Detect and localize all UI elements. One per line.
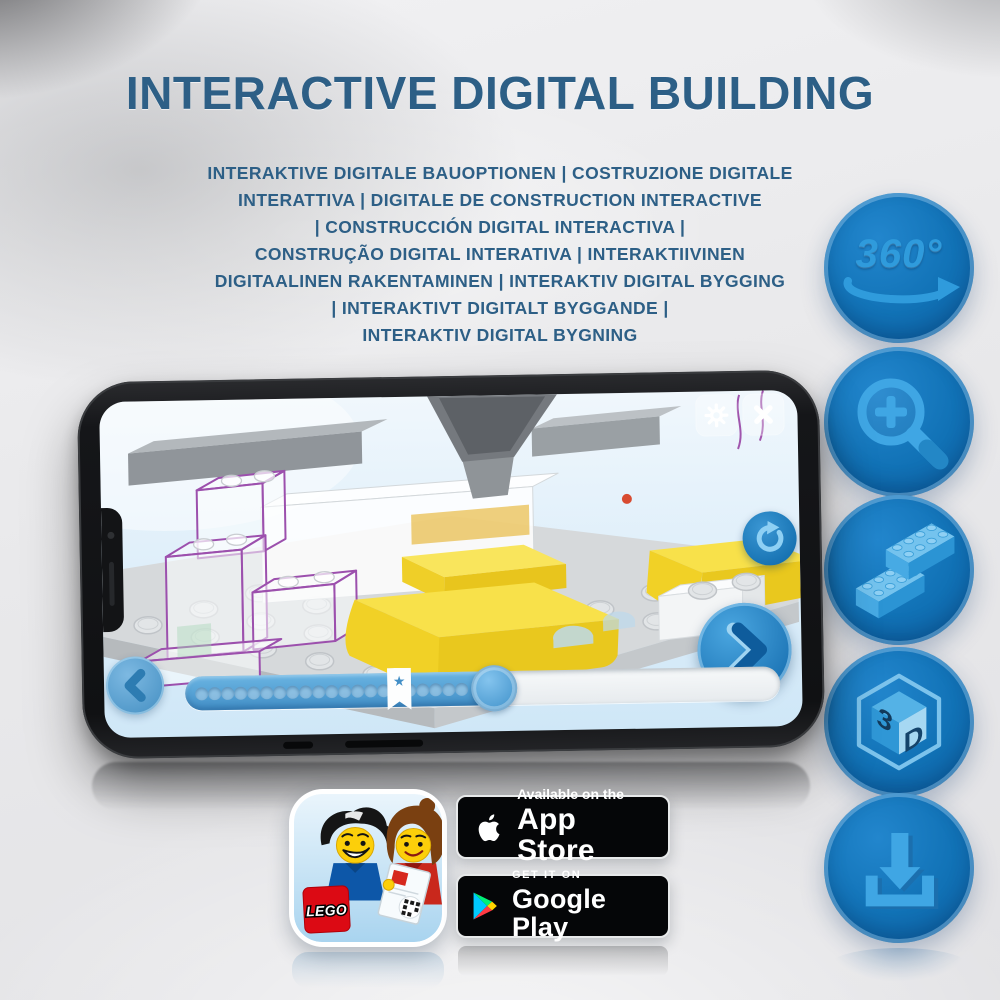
multilingual-subtitle: INTERAKTIVE DIGITALE BAUOPTIONEN | COSTR… bbox=[120, 160, 880, 349]
phone-volume-button bbox=[345, 740, 423, 748]
progress-dot bbox=[416, 683, 429, 696]
settings-button[interactable] bbox=[695, 394, 738, 437]
progress-dot bbox=[208, 687, 221, 700]
feature-3d-view-icon: 3 D bbox=[824, 647, 974, 797]
progress-dot bbox=[455, 682, 468, 695]
speaker-icon bbox=[109, 562, 115, 606]
smartphone: ★ bbox=[77, 370, 825, 760]
phone-reflection bbox=[92, 762, 810, 810]
app-store-tagline: Available on the bbox=[517, 787, 654, 802]
rotate-icon bbox=[749, 518, 790, 559]
progress-dot bbox=[299, 685, 312, 698]
progress-dot bbox=[338, 684, 351, 697]
camera-icon bbox=[107, 532, 114, 539]
phone-notch bbox=[101, 508, 124, 632]
feature-zoom-in-icon bbox=[824, 347, 974, 497]
gear-icon bbox=[701, 400, 732, 431]
download-icon-reflection bbox=[830, 948, 968, 982]
close-button[interactable] bbox=[742, 393, 785, 436]
google-play-name: Google Play bbox=[512, 885, 654, 942]
progress-dot bbox=[312, 685, 325, 698]
subtitle-line: | CONSTRUCCIÓN DIGITAL INTERACTIVA | bbox=[120, 214, 880, 241]
subtitle-line: INTERAKTIVE DIGITALE BAUOPTIONEN | COSTR… bbox=[120, 160, 880, 187]
progress-dot bbox=[247, 686, 260, 699]
lego-logo-text: LEGO bbox=[306, 901, 348, 919]
rotate-model-button[interactable] bbox=[742, 511, 797, 566]
progress-dot bbox=[260, 686, 273, 699]
page-title: INTERACTIVE DIGITAL BUILDING bbox=[0, 66, 1000, 120]
feature-brick-icon bbox=[824, 495, 974, 645]
phone-screen: ★ bbox=[99, 390, 803, 738]
apple-icon bbox=[472, 807, 504, 847]
progress-handle[interactable] bbox=[471, 665, 518, 712]
progress-dot bbox=[364, 684, 377, 697]
close-icon bbox=[749, 400, 777, 428]
google-play-badge[interactable]: GET IT ON Google Play bbox=[456, 874, 670, 938]
minifigures-artwork: LEGO bbox=[294, 794, 442, 942]
app-store-name: App Store bbox=[517, 804, 654, 867]
app-icon-reflection bbox=[292, 952, 444, 988]
3d-cube-icon: 3 D bbox=[834, 657, 964, 787]
download-arrow-icon bbox=[835, 804, 963, 932]
subtitle-line: CONSTRUÇÃO DIGITAL INTERATIVA | INTERAKT… bbox=[120, 241, 880, 268]
brick-upper bbox=[886, 523, 955, 579]
lego-logo: LEGO bbox=[303, 886, 351, 934]
progress-dot bbox=[429, 683, 442, 696]
feature-download-icon bbox=[824, 793, 974, 943]
marketing-poster: INTERACTIVE DIGITAL BUILDING INTERAKTIVE… bbox=[0, 0, 1000, 1000]
rotation-arrow-icon bbox=[838, 277, 960, 311]
feature-360-rotation-icon: 360° bbox=[824, 193, 974, 343]
subtitle-line: INTERATTIVA | DIGITALE DE CONSTRUCTION I… bbox=[120, 187, 880, 214]
progress-fill bbox=[185, 671, 495, 710]
progress-dot bbox=[286, 685, 299, 698]
lego-app-icon[interactable]: LEGO bbox=[289, 789, 447, 947]
phone-volume-button bbox=[283, 741, 313, 749]
lego-brick-icon bbox=[833, 504, 965, 636]
app-store-badge[interactable]: Available on the App Store bbox=[456, 795, 670, 859]
360-label: 360° bbox=[856, 232, 943, 277]
subtitle-line: DIGITAALINEN RAKENTAMINEN | INTERAKTIV D… bbox=[120, 268, 880, 295]
google-play-tagline: GET IT ON bbox=[512, 870, 654, 882]
previous-step-button[interactable] bbox=[106, 656, 165, 715]
progress-dot bbox=[351, 684, 364, 697]
progress-dot bbox=[234, 686, 247, 699]
subtitle-line: INTERAKTIV DIGITAL BYGNING bbox=[120, 322, 880, 349]
progress-dot bbox=[221, 686, 234, 699]
progress-dot bbox=[195, 687, 208, 700]
progress-dot bbox=[273, 685, 286, 698]
badge-reflection bbox=[458, 946, 668, 976]
bookmark-star-icon: ★ bbox=[393, 673, 406, 689]
magnifier-plus-icon bbox=[835, 358, 963, 486]
google-play-icon bbox=[472, 890, 499, 922]
progress-dot bbox=[325, 684, 338, 697]
chevron-left-icon bbox=[106, 656, 165, 715]
progress-dot bbox=[442, 682, 455, 695]
subtitle-line: | INTERAKTIVT DIGITALT BYGGANDE | bbox=[120, 295, 880, 322]
